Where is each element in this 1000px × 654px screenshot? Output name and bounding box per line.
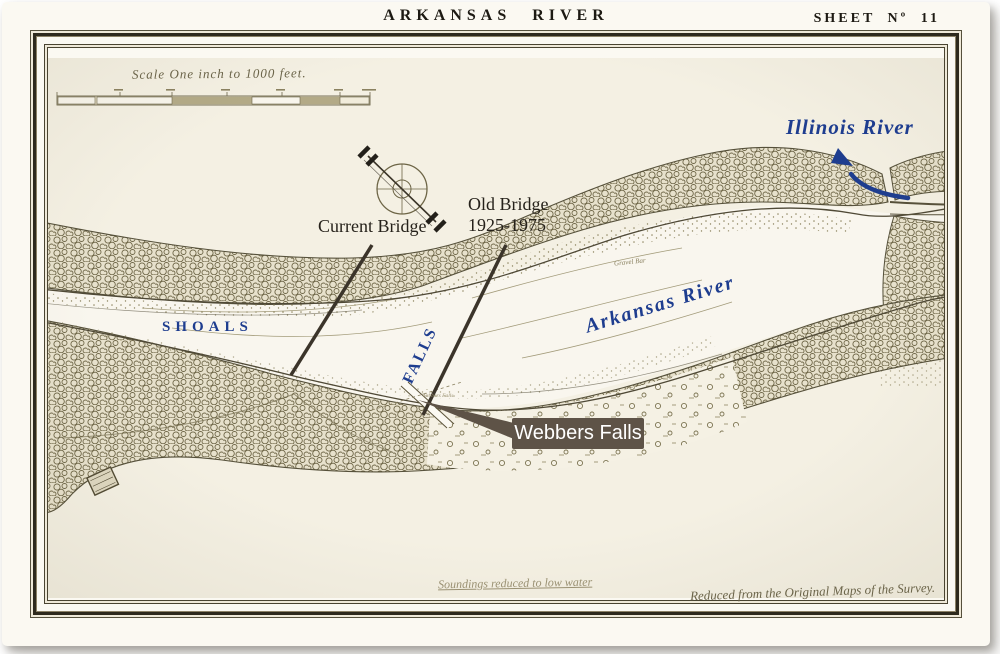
illinois-river-label: Illinois River	[786, 115, 914, 140]
map-artwork	[2, 2, 990, 646]
soundings-note: Soundings reduced to low water	[438, 575, 592, 593]
map-sheet: ARKANSAS RIVER SHEET Nº 11 Scale One inc…	[2, 2, 990, 646]
scale-caption: Scale One inch to 1000 feet.	[132, 65, 307, 83]
old-bridge-label-line2: 1925-1975	[468, 215, 549, 236]
screenshot: ARKANSAS RIVER SHEET Nº 11 Scale One inc…	[0, 0, 1000, 654]
sheet-number: SHEET Nº 11	[814, 11, 940, 27]
current-bridge-label: Current Bridge	[318, 216, 426, 237]
old-bridge-label-line1: Old Bridge	[468, 194, 549, 215]
webbers-falls-callout-label: Webbers Falls	[512, 418, 644, 449]
old-bridge-label: Old Bridge 1925-1975	[468, 194, 549, 236]
webbers-falls-small-label: Webbers Falls	[422, 393, 453, 399]
shoals-label: SHOALS	[162, 319, 253, 336]
